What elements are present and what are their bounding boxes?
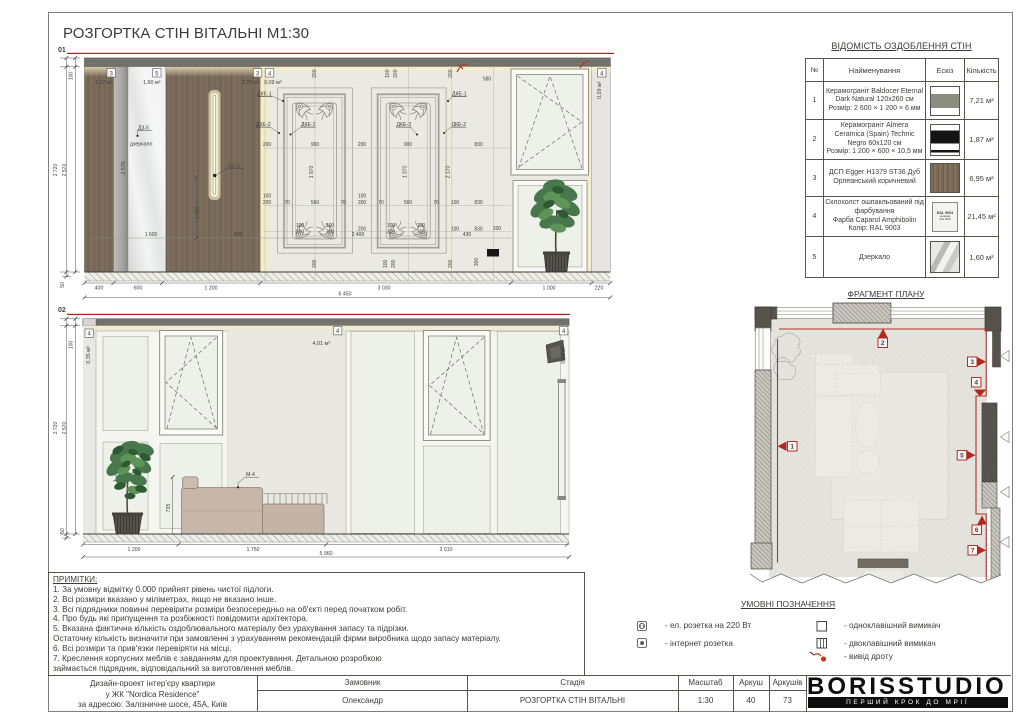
svg-text:2 720: 2 720 bbox=[53, 164, 59, 177]
svg-text:100: 100 bbox=[296, 223, 305, 229]
svg-text:0,59 м²: 0,59 м² bbox=[597, 81, 603, 99]
svg-text:70: 70 bbox=[433, 200, 439, 206]
svg-text:01: 01 bbox=[58, 47, 66, 54]
svg-text:3,20 м²: 3,20 м² bbox=[242, 80, 260, 86]
svg-text:дзеркало: дзеркало bbox=[130, 142, 152, 148]
svg-text:560: 560 bbox=[404, 200, 413, 206]
svg-text:1 200: 1 200 bbox=[205, 286, 218, 292]
svg-text:7: 7 bbox=[971, 548, 975, 555]
svg-text:830: 830 bbox=[474, 227, 483, 233]
svg-text:100: 100 bbox=[326, 223, 335, 229]
svg-text:100: 100 bbox=[387, 223, 396, 229]
svg-text:580: 580 bbox=[483, 77, 492, 83]
svg-text:300: 300 bbox=[326, 230, 335, 236]
svg-text:200: 200 bbox=[393, 69, 399, 78]
svg-text:2 170: 2 170 bbox=[446, 166, 452, 179]
svg-text:100: 100 bbox=[451, 200, 460, 206]
svg-text:900: 900 bbox=[311, 142, 320, 148]
svg-text:70: 70 bbox=[284, 200, 290, 206]
svg-text:100: 100 bbox=[385, 69, 391, 78]
svg-text:1 370: 1 370 bbox=[403, 166, 409, 179]
svg-text:400: 400 bbox=[95, 286, 104, 292]
svg-text:6: 6 bbox=[975, 527, 979, 534]
svg-text:1,07 м²: 1,07 м² bbox=[95, 80, 113, 86]
svg-text:100: 100 bbox=[417, 223, 426, 229]
svg-text:1 600: 1 600 bbox=[145, 232, 158, 238]
svg-text:100: 100 bbox=[358, 194, 367, 200]
svg-text:50: 50 bbox=[60, 282, 66, 288]
svg-text:300: 300 bbox=[417, 230, 426, 236]
svg-text:0,35 м²: 0,35 м² bbox=[86, 346, 92, 364]
svg-text:100: 100 bbox=[451, 227, 460, 233]
svg-text:2: 2 bbox=[881, 340, 885, 347]
svg-text:1 200: 1 200 bbox=[128, 547, 141, 553]
svg-text:600: 600 bbox=[134, 286, 143, 292]
svg-text:1: 1 bbox=[790, 444, 794, 451]
svg-text:900: 900 bbox=[404, 142, 413, 148]
svg-text:2 570: 2 570 bbox=[62, 164, 68, 177]
svg-text:0,08 м²: 0,08 м² bbox=[561, 346, 567, 364]
svg-text:4: 4 bbox=[974, 380, 978, 387]
svg-text:100: 100 bbox=[69, 341, 75, 350]
svg-text:300: 300 bbox=[387, 230, 396, 236]
svg-text:5: 5 bbox=[960, 453, 964, 460]
svg-text:3 010: 3 010 bbox=[440, 547, 453, 553]
svg-text:1,60 м²: 1,60 м² bbox=[143, 80, 161, 86]
svg-text:1 970: 1 970 bbox=[309, 166, 315, 179]
svg-text:200: 200 bbox=[312, 69, 318, 78]
svg-text:200: 200 bbox=[358, 200, 367, 206]
svg-text:3 030: 3 030 bbox=[378, 286, 391, 292]
svg-text:830: 830 bbox=[474, 200, 483, 206]
svg-text:70: 70 bbox=[340, 200, 346, 206]
svg-text:50: 50 bbox=[60, 528, 66, 534]
svg-text:2 720: 2 720 bbox=[53, 422, 59, 435]
svg-text:3: 3 bbox=[970, 359, 974, 366]
svg-text:200: 200 bbox=[391, 259, 397, 268]
svg-text:1 000: 1 000 bbox=[543, 286, 556, 292]
svg-text:70: 70 bbox=[378, 200, 384, 206]
svg-text:1 200: 1 200 bbox=[195, 207, 201, 220]
svg-text:100: 100 bbox=[69, 72, 75, 81]
svg-text:430: 430 bbox=[463, 232, 472, 238]
svg-text:100: 100 bbox=[263, 194, 272, 200]
svg-text:1 750: 1 750 bbox=[247, 547, 260, 553]
svg-text:200: 200 bbox=[263, 142, 272, 148]
svg-text:200: 200 bbox=[448, 69, 454, 78]
svg-text:2 570: 2 570 bbox=[62, 422, 68, 435]
svg-text:200: 200 bbox=[263, 200, 272, 206]
svg-text:2 570: 2 570 bbox=[121, 161, 127, 174]
svg-text:8,09 м²: 8,09 м² bbox=[264, 80, 282, 86]
svg-text:300: 300 bbox=[296, 230, 305, 236]
svg-text:5 960: 5 960 bbox=[320, 551, 333, 557]
svg-text:200: 200 bbox=[448, 259, 454, 268]
svg-text:ОС-1: ОС-1 bbox=[228, 164, 241, 170]
svg-text:100: 100 bbox=[383, 259, 389, 268]
svg-text:4,01 м²: 4,01 м² bbox=[313, 341, 331, 347]
svg-text:200: 200 bbox=[358, 142, 367, 148]
svg-text:2 400: 2 400 bbox=[352, 232, 365, 238]
svg-text:220: 220 bbox=[595, 286, 604, 292]
svg-text:830: 830 bbox=[474, 142, 483, 148]
svg-text:300: 300 bbox=[474, 258, 480, 267]
svg-text:560: 560 bbox=[311, 200, 320, 206]
svg-text:200: 200 bbox=[312, 259, 318, 268]
svg-text:200: 200 bbox=[493, 226, 502, 232]
svg-text:735: 735 bbox=[166, 504, 172, 513]
svg-text:02: 02 bbox=[58, 307, 66, 314]
svg-text:600: 600 bbox=[234, 232, 243, 238]
svg-text:6 450: 6 450 bbox=[339, 292, 352, 298]
